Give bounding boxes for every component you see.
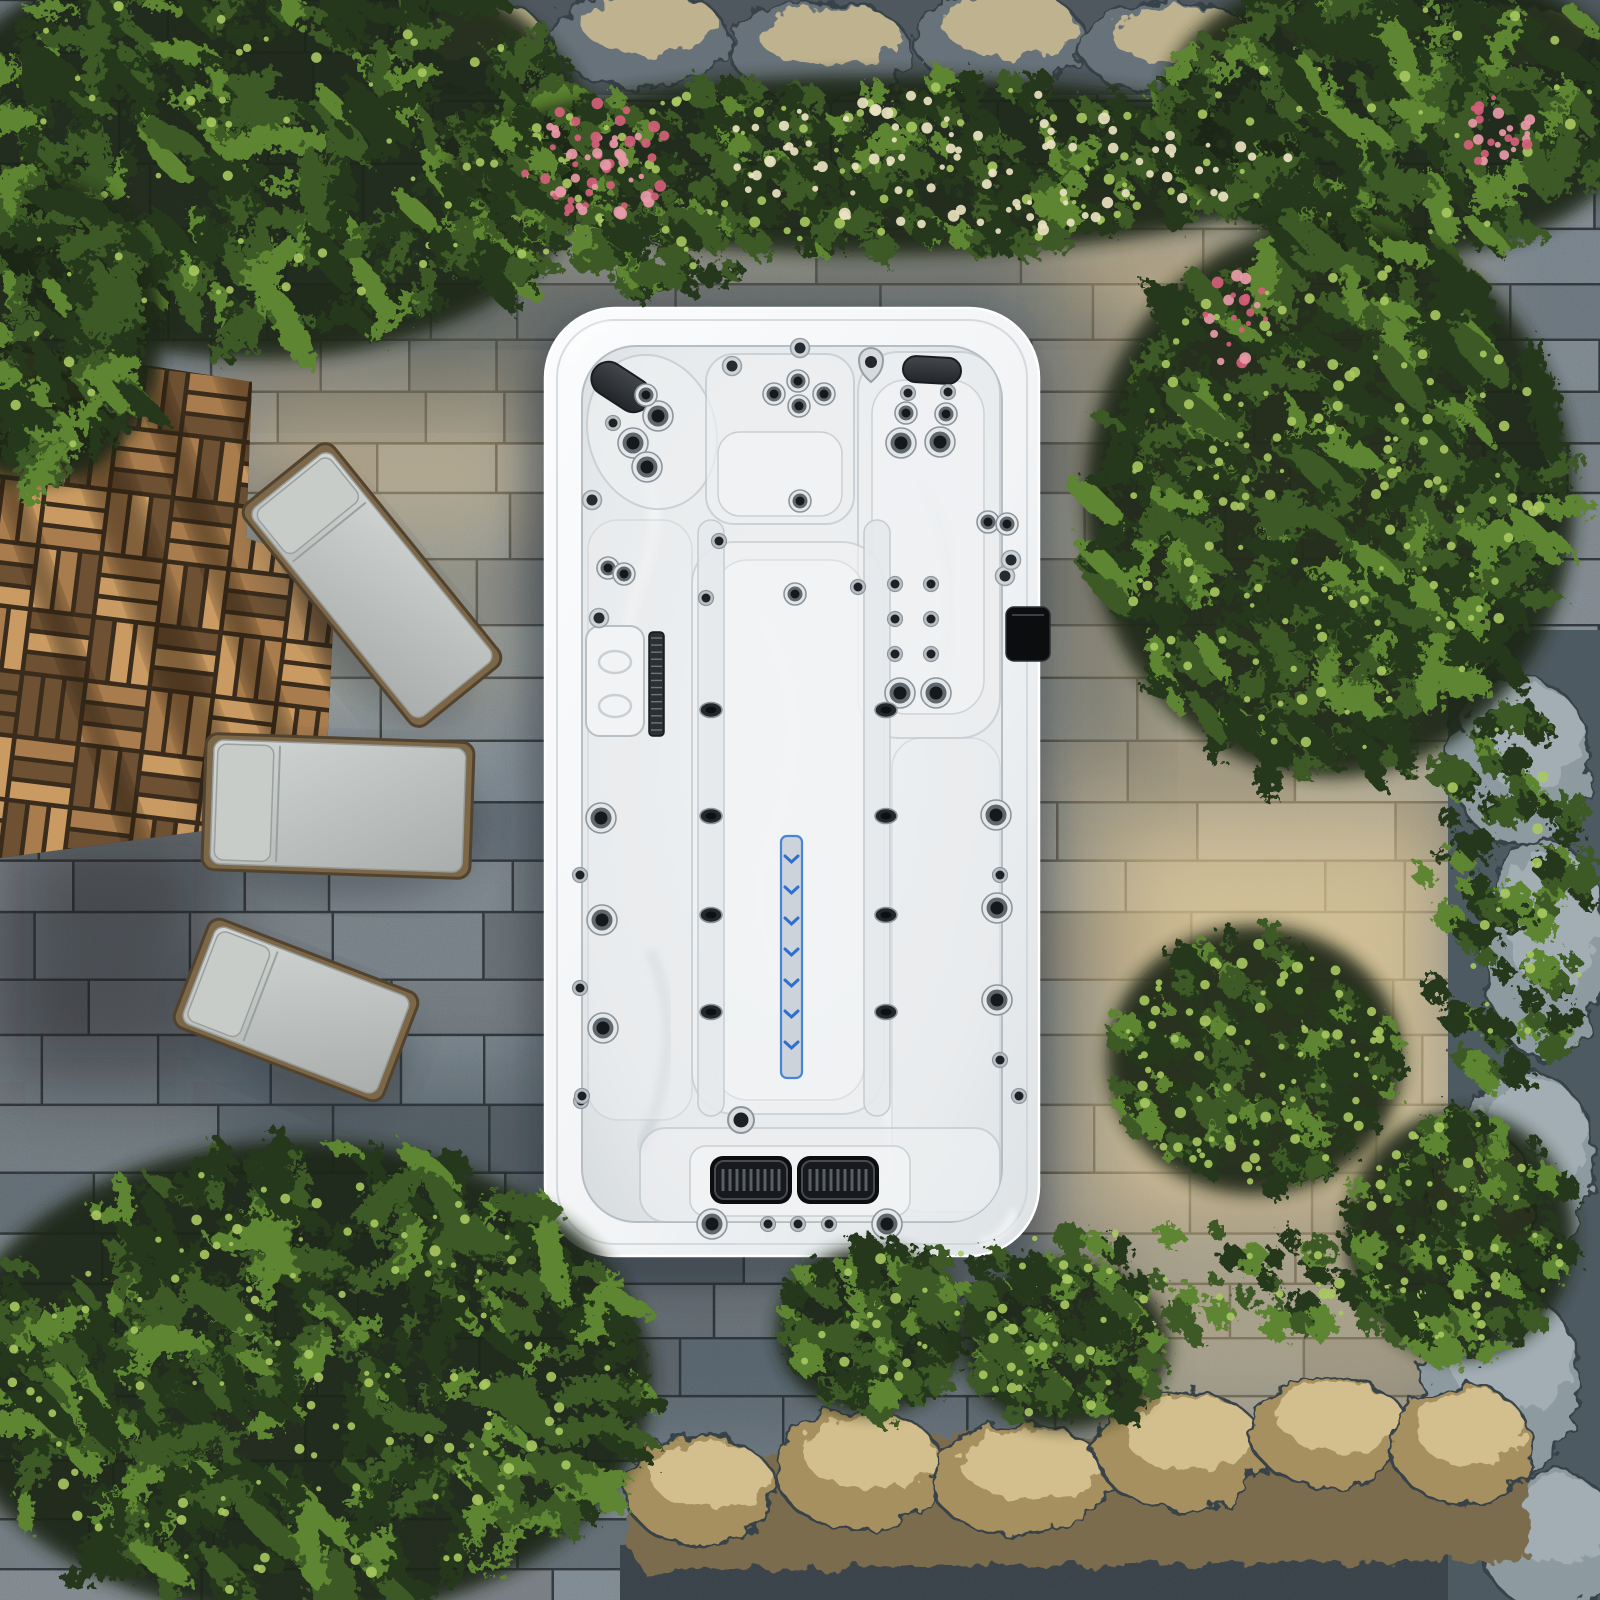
leaf-clump [889,179,920,210]
flower-bloom [988,169,997,178]
leaf-clump [1262,944,1279,961]
sunlit-leaf-speckle [1237,502,1245,510]
jet-nozzle [595,812,608,825]
teardrop-jet-center [865,356,877,368]
divider-jet [875,908,897,923]
water-jet-small [575,1089,590,1104]
leaf-clump [1090,1240,1110,1260]
flower-bloom [1254,302,1261,309]
sunlit-leaf-speckle [1025,1346,1034,1355]
sunlit-leaf-speckle [1139,995,1149,1005]
sunlit-leaf-speckle [660,101,665,106]
leaf-clump [1346,1176,1368,1198]
leaf-clump [1111,1097,1126,1112]
sunlit-leaf-speckle [1525,963,1535,973]
sunlit-leaf-speckle [1025,1408,1034,1417]
jet-nozzle [927,580,936,589]
flower-bloom [973,131,983,141]
sunlit-leaf-speckle [1380,296,1389,305]
leaf-clump [794,1319,815,1340]
sunlit-leaf-speckle [1228,1114,1237,1123]
sunlit-leaf-speckle [979,1370,988,1379]
flower-bloom [801,113,808,120]
flower-bloom [592,184,598,190]
sunlit-leaf-speckle [1209,1136,1215,1142]
flower-bloom [1060,189,1068,197]
sunlit-leaf-speckle [1318,1288,1329,1299]
flower-bloom [659,131,669,141]
flower-bloom [1493,108,1504,119]
flower-bloom [635,133,642,140]
sunlit-leaf-speckle [1215,458,1224,467]
sunlit-leaf-speckle [1295,987,1303,995]
jet-nozzle [587,495,598,506]
jet-nozzle [597,1022,610,1035]
sunlit-leaf-speckle [1280,469,1284,473]
sunlit-leaf-speckle [1148,1021,1156,1029]
sunlit-leaf-speckle [1052,1341,1058,1347]
jet-nozzle [891,580,900,589]
sunlit-leaf-speckle [1367,1007,1376,1016]
sunlit-leaf-speckle [562,179,572,189]
divider-jet [875,1005,897,1020]
leaf-clump [526,224,543,241]
sunlit-leaf-speckle [1224,442,1229,447]
flower-bloom [752,124,760,132]
flower-bloom [852,163,859,170]
leaf-clump [608,91,627,110]
flower-bloom [982,179,992,189]
jet-nozzle [927,650,936,659]
sunlit-leaf-speckle [1504,533,1514,543]
sunlit-leaf-speckle [366,1567,377,1578]
leaf-clump [535,198,551,214]
water-jet [981,800,1011,830]
stone-lit-face [1416,1391,1525,1465]
sunlit-leaf-speckle [218,1508,225,1515]
leaf-clump [1471,874,1491,894]
jet-nozzle [881,912,892,919]
sunlit-leaf-speckle [1278,306,1287,315]
flower-bloom [954,154,961,161]
leaf-clump [1042,1402,1058,1418]
sunlit-leaf-speckle [649,108,656,115]
leaf-clump [966,229,982,245]
sunlit-leaf-speckle [36,1396,43,1403]
sunlit-leaf-speckle [463,163,471,171]
sunlit-leaf-speckle [1250,1153,1260,1163]
leaf-clump [736,232,752,248]
leaf-clump [527,148,556,177]
leaf-clump [1221,1095,1237,1111]
sunlit-leaf-speckle [574,195,582,203]
sunlit-leaf-speckle [1327,359,1338,370]
sunlit-leaf-speckle [1500,889,1510,899]
leaf-clump [1435,850,1450,865]
sunlit-leaf-speckle [477,1269,483,1275]
leaf-clump [1000,160,1033,193]
flower-bloom [567,149,578,160]
flower-bloom [1206,143,1211,148]
sunlit-leaf-speckle [1213,474,1219,480]
flower-bloom [648,153,657,162]
sunlit-leaf-speckle [1259,66,1269,76]
flower-bloom [591,132,602,143]
leaf-clump [1166,946,1181,961]
sunlit-leaf-speckle [198,1172,204,1178]
jet-nozzle [796,497,805,506]
flower-bloom [1027,200,1032,205]
leaf-clump [1369,1056,1391,1078]
sunlit-leaf-speckle [64,357,75,368]
leaf-clump [602,218,627,243]
sunlit-leaf-speckle [957,119,964,126]
flower-bloom [1152,146,1159,153]
sunlit-leaf-speckle [1017,1370,1023,1376]
leaf-clump [1341,1200,1366,1225]
leaf-clump [505,256,534,285]
sunlit-leaf-speckle [475,1279,479,1283]
sunlit-leaf-speckle [1517,1164,1526,1173]
flower-bloom [592,148,602,158]
sunlit-leaf-speckle [256,1480,261,1485]
leaf-clump [1521,907,1536,922]
sunlit-leaf-speckle [1344,370,1355,381]
sunlit-leaf-speckle [58,1479,69,1490]
sunlit-leaf-speckle [364,1378,373,1387]
sunlit-leaf-speckle [1039,1342,1047,1350]
sunlit-leaf-speckle [1150,643,1158,651]
sunlit-leaf-speckle [1278,701,1284,707]
jet-nozzle [620,570,629,579]
flower-bloom [817,161,828,172]
sunlit-leaf-speckle [1244,442,1250,448]
sunlit-leaf-speckle [1437,1255,1447,1265]
sunlit-leaf-speckle [1418,1234,1425,1241]
leaf-clump [1074,96,1090,112]
sunlit-leaf-speckle [652,165,660,173]
water-jet [787,370,809,392]
flower-bloom [812,186,818,192]
sunlit-leaf-speckle [1314,413,1324,423]
sunlit-leaf-speckle [1375,1027,1384,1036]
sunlit-leaf-speckle [385,1373,391,1379]
sunlit-leaf-speckle [1151,1006,1160,1015]
jet-nozzle [996,1056,1005,1065]
sunlit-leaf-speckle [1301,737,1311,747]
sunlit-leaf-speckle [1480,392,1486,398]
sunlit-leaf-speckle [37,237,41,241]
leaf-clump [1491,1038,1506,1053]
sunlit-leaf-speckle [229,1242,233,1246]
sunlit-leaf-speckle [221,1496,226,1501]
sunlit-leaf-speckle [1428,229,1433,234]
sunlit-leaf-speckle [1282,1101,1286,1105]
sunlit-leaf-speckle [1370,1037,1377,1044]
sunlit-leaf-speckle [1334,1278,1345,1289]
sunlit-leaf-speckle [1393,436,1398,441]
leaf-clump [1431,1335,1463,1367]
sunlit-leaf-speckle [721,200,728,207]
jet-nozzle [984,518,993,527]
sunlit-leaf-speckle [1485,1291,1491,1297]
leaf-clump [471,223,487,239]
sunlit-leaf-speckle [840,168,846,174]
leaf-clump [1288,942,1309,963]
sunlit-leaf-speckle [797,236,803,242]
flower-bloom [1108,143,1119,154]
sunlit-leaf-speckle [178,1498,188,1508]
leaf-clump [1518,987,1544,1013]
flower-bloom [624,136,635,147]
leaf-clump [1259,1040,1282,1063]
flower-bloom [995,228,1001,234]
jet-nozzle [627,437,640,450]
leaf-clump [1219,1245,1244,1270]
flower-bloom [572,161,578,167]
flower-bloom [1034,91,1042,99]
sunlit-leaf-speckle [1253,193,1259,199]
sunlit-leaf-speckle [1395,403,1405,413]
leaf-clump [1302,1053,1316,1067]
sunlit-leaf-speckle [1335,990,1343,998]
sunlit-leaf-speckle [91,1210,101,1220]
divider-jet [700,908,722,923]
sunlit-leaf-speckle [232,1224,242,1234]
sunlit-leaf-speckle [1495,727,1499,731]
leaf-clump [1265,1248,1285,1268]
flower-bloom [1246,321,1251,326]
rim-jet [791,339,810,358]
sunlit-leaf-speckle [1362,745,1366,749]
sunlit-leaf-speckle [1434,1122,1444,1132]
sunlit-leaf-speckle [87,389,95,397]
flower-bloom [882,107,894,119]
leaf-clump [690,175,715,200]
sunlit-leaf-speckle [1314,1251,1322,1259]
sunlit-leaf-speckle [200,1250,210,1260]
sunlit-leaf-speckle [236,49,243,56]
jet-nozzle [706,707,717,714]
flower-bloom [1226,342,1231,347]
leaf-clump [1524,1136,1543,1155]
flower-bloom [1481,150,1489,158]
sunlit-leaf-speckle [1008,88,1013,93]
sunlit-leaf-speckle [1216,1293,1223,1300]
sunlit-leaf-speckle [1541,1288,1546,1293]
sunlit-leaf-speckle [902,1358,911,1367]
leaf-clump [1308,1305,1334,1331]
water-jet [763,383,785,405]
sunlit-leaf-speckle [875,1253,886,1264]
sunlit-leaf-speckle [216,290,221,295]
flower-bloom [592,98,604,110]
sunlit-leaf-speckle [1265,291,1270,296]
divider-jet [700,703,722,718]
sunlit-leaf-speckle [1565,119,1576,130]
sunlit-leaf-speckle [11,400,21,410]
leaf-clump [1188,1086,1206,1104]
leaf-clump [729,81,746,98]
sunlit-leaf-speckle [1168,377,1179,388]
sunlit-leaf-speckle [1510,11,1520,21]
leaf-clump [1125,1272,1150,1297]
flower-bloom [1474,157,1482,165]
sunlit-leaf-speckle [1437,1200,1448,1211]
sunlit-leaf-speckle [1468,615,1474,621]
ledge-stone [775,1410,945,1530]
leaf-clump [1485,1173,1504,1192]
sunlit-leaf-speckle [1209,445,1217,453]
sunlit-leaf-speckle [503,1463,514,1474]
sunlit-leaf-speckle [1297,694,1308,705]
sunlit-leaf-speckle [1419,437,1428,446]
jet-nozzle [996,871,1005,880]
sunlit-leaf-speckle [391,1266,399,1274]
sunlit-leaf-speckle [1435,1335,1439,1339]
jet-nozzle [1015,1092,1024,1101]
jet-nozzle [1003,520,1012,529]
sunlit-leaf-speckle [1278,1044,1284,1050]
sunlit-leaf-speckle [1469,572,1474,577]
sunlit-leaf-speckle [1480,920,1490,930]
sunlit-leaf-speckle [43,28,49,34]
water-jet [789,490,811,512]
sunlit-leaf-speckle [505,1235,510,1240]
flower-bloom [887,160,893,166]
sunlit-leaf-speckle [1461,1221,1466,1226]
sunlit-leaf-speckle [682,92,691,101]
sunlit-leaf-speckle [1360,595,1369,604]
sunlit-leaf-speckle [89,95,96,102]
sunlit-leaf-speckle [225,1214,232,1221]
sunlit-leaf-speckle [1145,1067,1151,1073]
leaf-clump [1064,172,1086,194]
sunlit-leaf-speckle [290,1273,296,1279]
sunlit-leaf-speckle [424,1434,433,1443]
jet-nozzle [795,402,804,411]
sunlit-leaf-speckle [1197,1148,1202,1153]
sunlit-leaf-speckle [281,282,290,291]
flower-bloom [977,219,985,227]
sunlit-leaf-speckle [1345,710,1350,715]
sunlit-leaf-speckle [458,1474,463,1479]
sunlit-leaf-speckle [1143,581,1153,591]
flower-bloom [1210,330,1218,338]
leaf-clump [475,242,508,275]
sunlit-leaf-speckle [95,1524,103,1532]
sunlit-leaf-speckle [1422,414,1432,424]
sunlit-leaf-speckle [1343,1112,1353,1122]
jet-nozzle [791,590,800,599]
sunlit-leaf-speckle [1304,293,1314,303]
sunlit-leaf-speckle [1495,473,1500,478]
sunlit-leaf-speckle [364,1371,369,1376]
sunlit-leaf-speckle [1200,1015,1211,1026]
sunlit-leaf-speckle [1376,1263,1383,1270]
sunlit-leaf-speckle [356,1182,365,1191]
sunlit-leaf-speckle [1007,1324,1018,1335]
sunlit-leaf-speckle [155,1237,161,1243]
sunlit-leaf-speckle [754,107,764,117]
leaf-clump [1055,1223,1085,1253]
flower-bloom [924,97,933,106]
jet-nozzle [944,388,953,397]
sunlit-leaf-speckle [418,68,427,77]
sunlit-leaf-speckle [1372,1075,1377,1080]
intake-grille [710,1156,792,1204]
sunlit-leaf-speckle [1333,380,1344,391]
sunlit-leaf-speckle [1491,578,1498,585]
sunlit-leaf-speckle [1430,581,1438,589]
flower-bloom [607,181,615,189]
sunlit-leaf-speckle [1060,1300,1069,1309]
sunlit-leaf-speckle [1240,169,1245,174]
jet-nozzle [702,594,711,603]
sunlit-leaf-speckle [1265,490,1275,500]
sunlit-leaf-speckle [1238,545,1243,550]
water-jet [813,383,835,405]
deck-foot-shadow [0,822,218,1082]
jet-nozzle [902,409,911,418]
sunlit-leaf-speckle [283,117,290,124]
sunlit-leaf-speckle [246,1286,253,1293]
sunlit-leaf-speckle [872,1320,881,1329]
leaf-clump [1537,1032,1568,1063]
sunlit-leaf-speckle [1253,658,1260,665]
sunlit-leaf-speckle [1297,360,1305,368]
sunlit-leaf-speckle [844,1268,852,1276]
jet-nozzle [927,615,936,624]
sunlit-leaf-speckle [906,122,917,133]
flower-bloom [870,104,882,116]
leaf-clump [925,65,956,96]
sunlit-leaf-speckle [370,1219,378,1227]
flower-bloom [564,203,574,213]
sunlit-leaf-speckle [958,1251,964,1257]
sunlit-leaf-speckle [1175,1107,1186,1118]
sunlit-leaf-speckle [689,262,696,269]
flower-bloom [772,189,781,198]
sunlit-leaf-speckle [1215,91,1222,98]
sunlit-leaf-speckle [333,1423,340,1430]
jet-nozzle [706,813,717,820]
flower-bloom [1068,143,1077,152]
leaf-clump [1532,1164,1559,1191]
jet-nozzle [891,650,900,659]
leaf-clump [1208,1018,1227,1037]
sunlit-leaf-speckle [1084,1264,1093,1273]
sunlit-leaf-speckle [1113,1233,1118,1238]
sunlit-leaf-speckle [1380,481,1389,490]
sunlit-leaf-speckle [543,249,549,255]
water-jet [784,583,806,605]
flower-bloom [946,144,956,154]
leaf-clump [1146,1332,1168,1354]
sunlit-leaf-speckle [1075,1354,1084,1363]
jet-nozzle [604,564,613,573]
leaf-clump [906,150,935,179]
sunlit-leaf-speckle [1475,1122,1481,1128]
sunlit-leaf-speckle [1237,432,1244,439]
sunlit-leaf-speckle [131,1326,139,1334]
sunlit-leaf-speckle [1203,159,1211,167]
leaf-clump [1563,953,1580,970]
sunlit-leaf-speckle [998,1304,1008,1314]
water-jet-small [993,868,1008,883]
sunlit-leaf-speckle [1404,543,1411,550]
sunlit-leaf-speckle [1173,338,1180,345]
